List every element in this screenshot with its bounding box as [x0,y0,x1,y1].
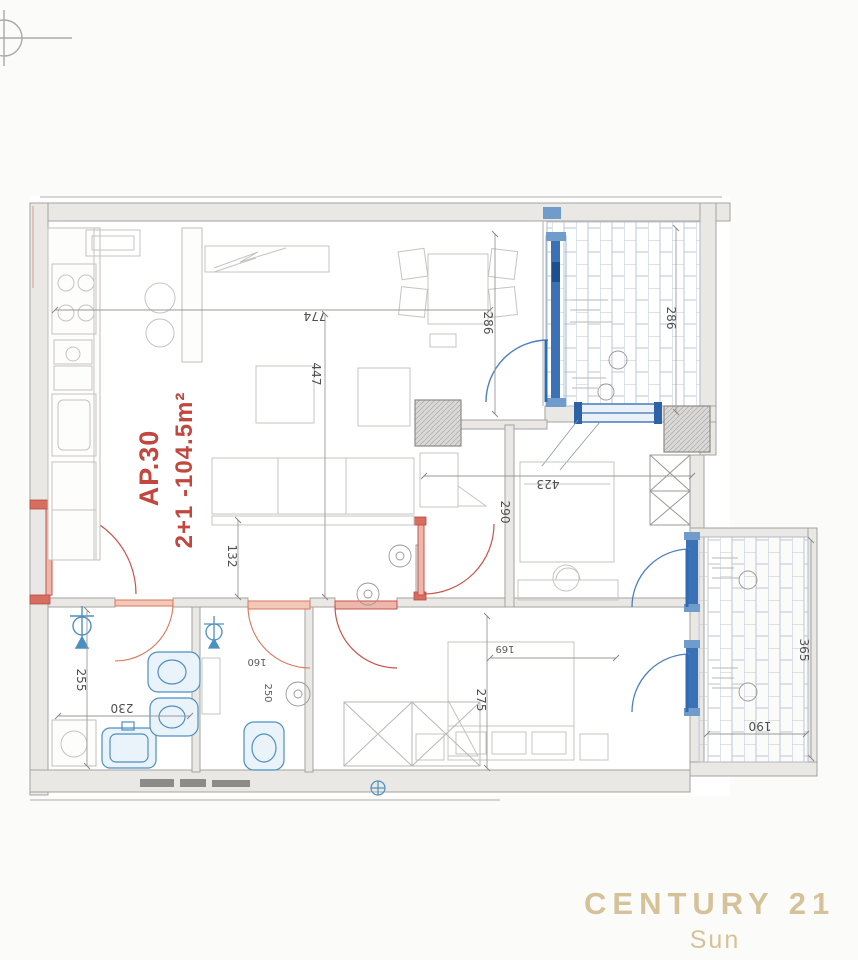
column-right [664,406,710,452]
dim-bedroom-depth: 275 [474,689,488,712]
toilet [148,652,200,692]
dim-room-right-depth: 290 [498,501,512,524]
apartment-spec: 2+1 -104.5m² [171,392,198,549]
toilet2 [244,722,284,770]
apartment-code: AP.30 [134,430,164,507]
dim-room-right-width: 423 [537,477,560,491]
floor-plan-drawing: 774 447 286 286 423 290 132 255 230 160 … [0,0,858,960]
agency-name-watermark: Sun [655,926,775,955]
dim-bath1-width: 230 [111,701,134,715]
survey-crosshair-icon [0,10,72,66]
dim-balcony-top-depth: 286 [664,307,678,330]
dim-dining-depth: 286 [481,312,495,335]
dim-balcony-right-depth: 365 [797,639,811,662]
pantry-unit [182,228,202,362]
bottom-wall-annotation [140,779,250,787]
dim-balcony-right-width: 190 [749,719,772,733]
dim-bath2-a: 160 [247,656,266,667]
scanned-floor-plan-page: 774 447 286 286 423 290 132 255 230 160 … [0,0,858,960]
washing-machine [52,720,96,766]
shaft-riser [650,455,690,525]
century21-watermark: CENTURY 21 [584,886,835,922]
floor-drain-icon [371,781,385,795]
window-cap-top [543,207,561,219]
dim-living-depth: 447 [309,363,323,386]
dim-hall-width: 132 [225,545,239,568]
bidet [150,698,198,736]
dim-bath2-b: 250 [262,683,273,702]
dim-living-width: 774 [304,309,327,323]
column-center [415,400,461,446]
sink [102,722,156,768]
dim-bath1-depth: 255 [74,669,88,692]
dim-bedroom-width: 169 [495,643,514,654]
